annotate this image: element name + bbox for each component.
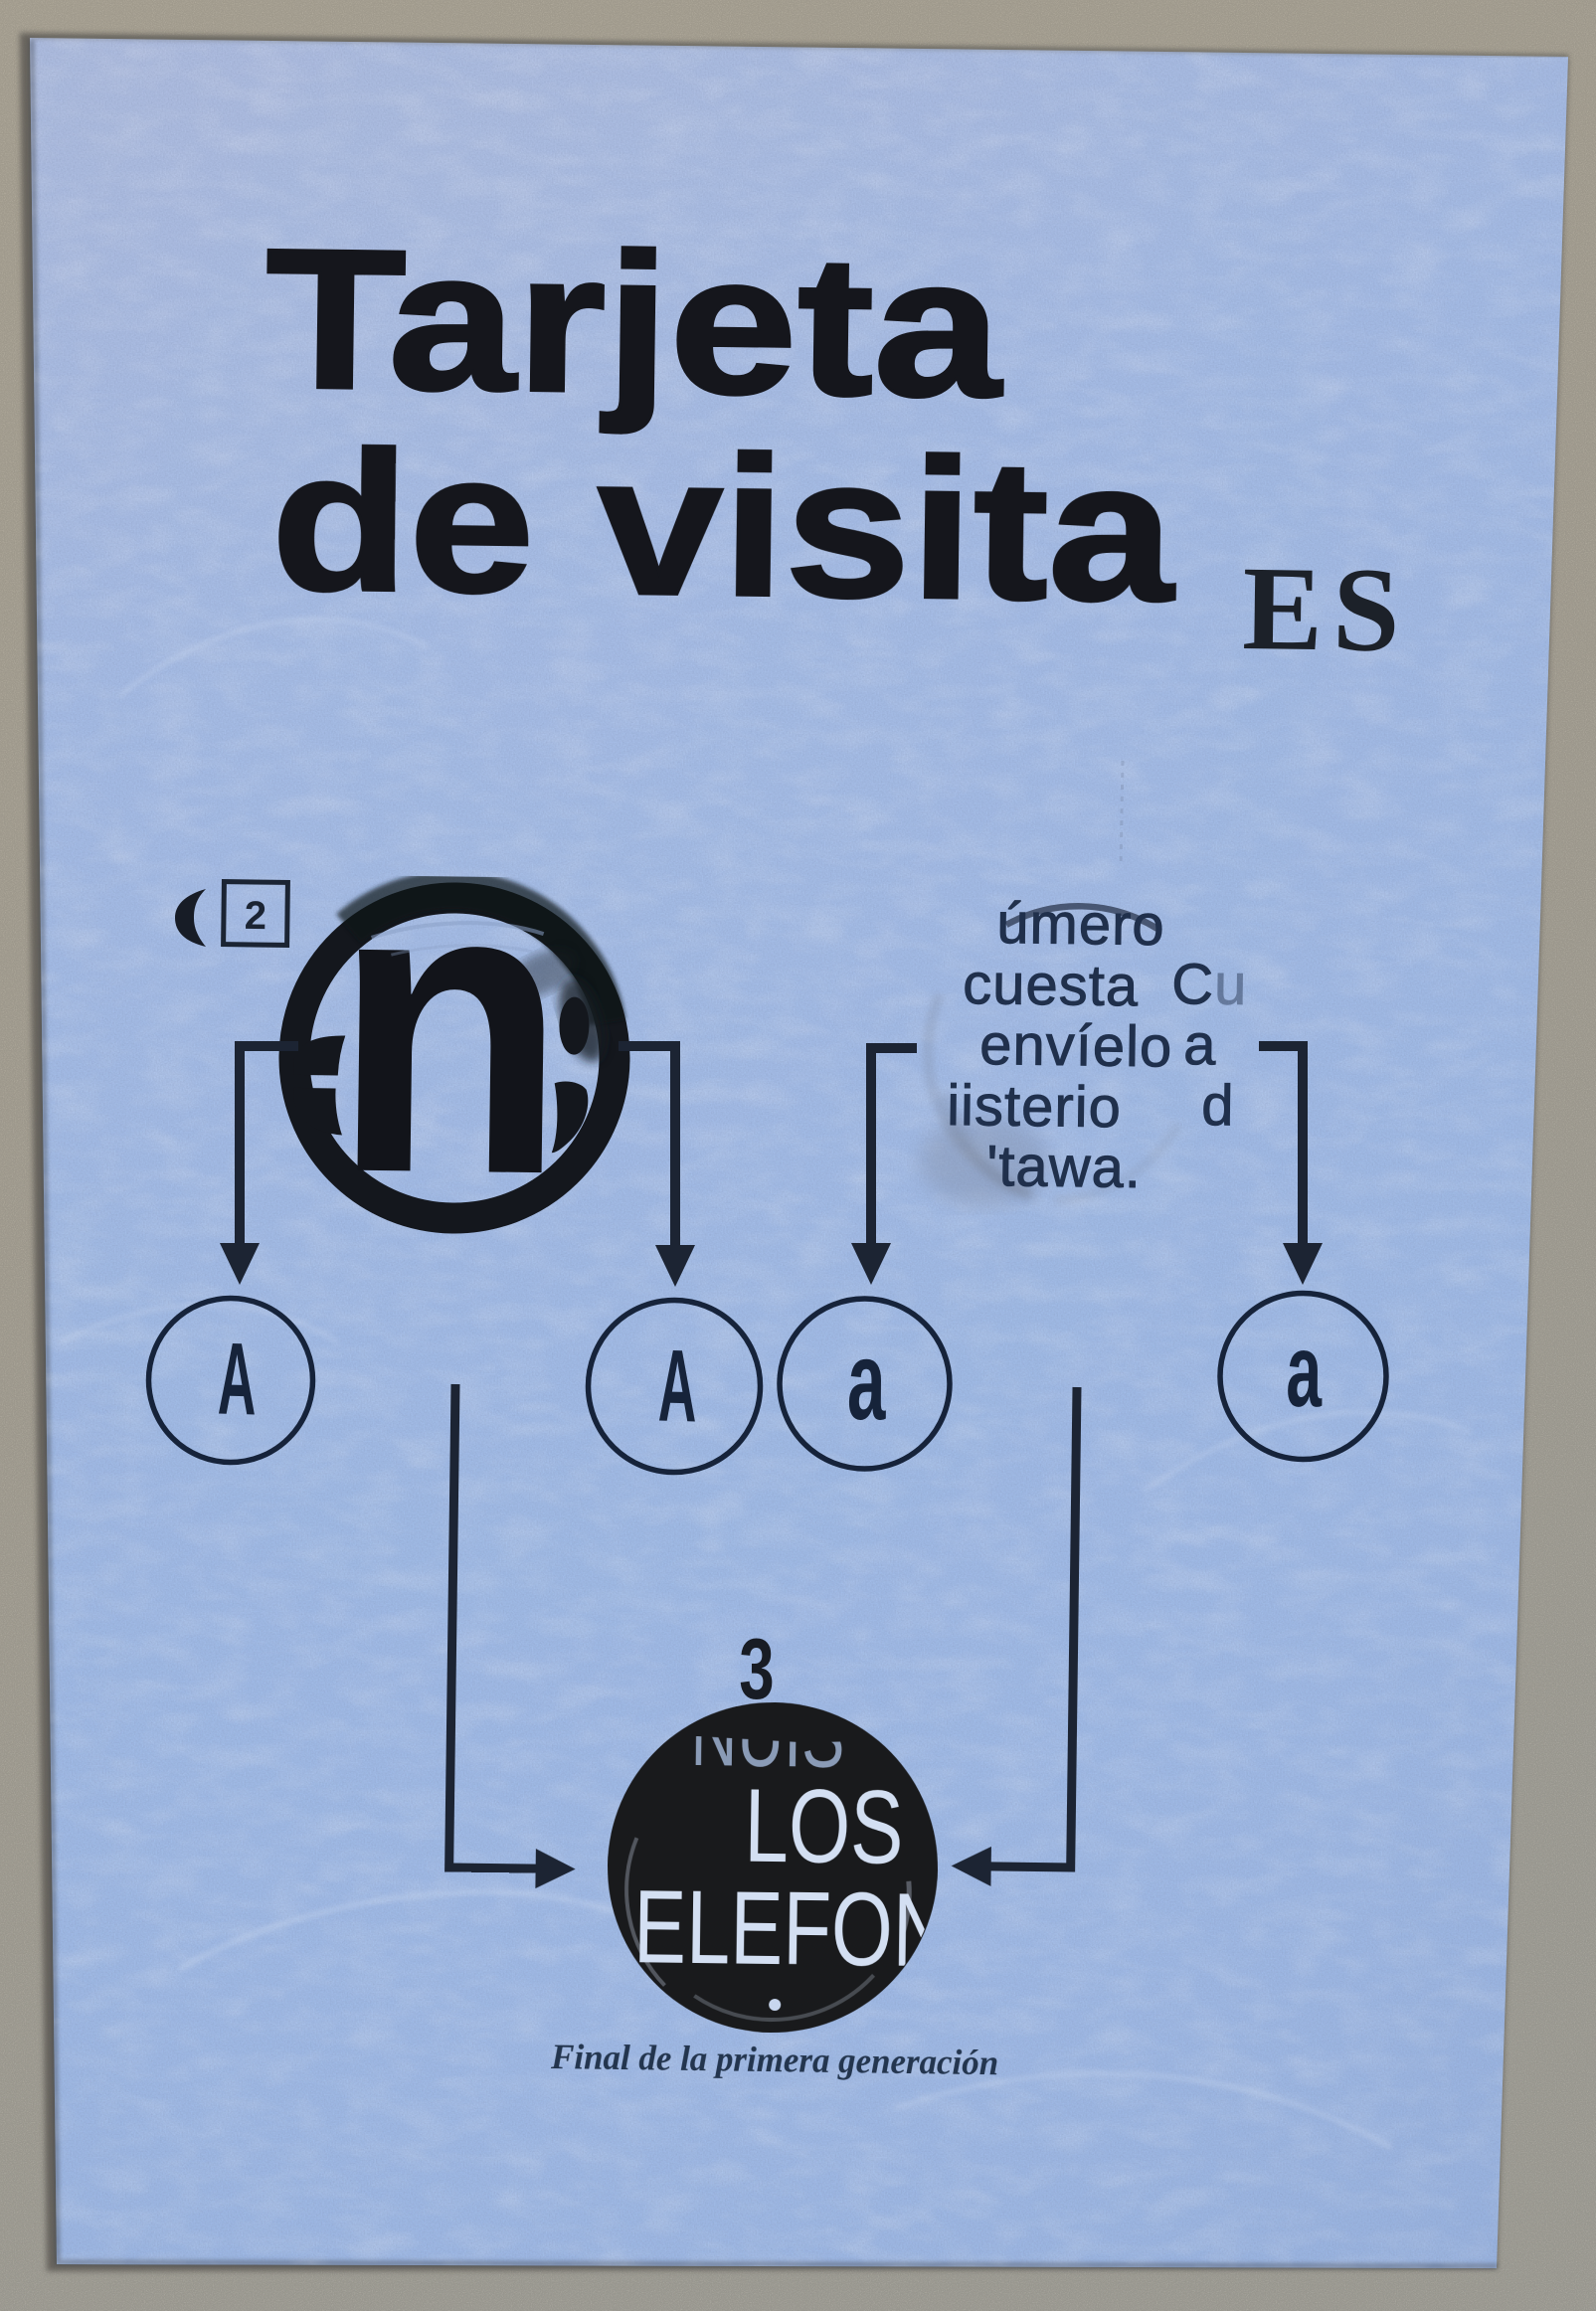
svg-text:LOS: LOS (744, 1768, 905, 1886)
svg-text:A: A (658, 1330, 697, 1444)
svg-text:A: A (218, 1323, 257, 1437)
svg-text:2: 2 (245, 894, 267, 938)
svg-text:Cu: Cu (1171, 952, 1248, 1017)
svg-text:cuesta: cuesta (963, 952, 1140, 1018)
svg-text:d: d (1201, 1073, 1235, 1138)
svg-text:a: a (846, 1319, 887, 1444)
svg-text:de visita: de visita (269, 409, 1177, 642)
svg-text:a: a (1286, 1314, 1323, 1429)
svg-text:Tarjeta: Tarjeta (264, 207, 1004, 440)
svg-text:iisterio: iisterio (947, 1073, 1122, 1140)
svg-text:ES: ES (1242, 542, 1401, 677)
svg-text:Final de la primera generación: Final de la primera generación (550, 2037, 998, 2082)
svg-text:a: a (1183, 1012, 1217, 1077)
svg-text:envíelo: envíelo (979, 1012, 1173, 1080)
svg-text:'tawa.: 'tawa. (986, 1134, 1143, 1200)
svg-text:úmero: úmero (996, 891, 1165, 958)
svg-text:n: n (329, 793, 570, 1262)
